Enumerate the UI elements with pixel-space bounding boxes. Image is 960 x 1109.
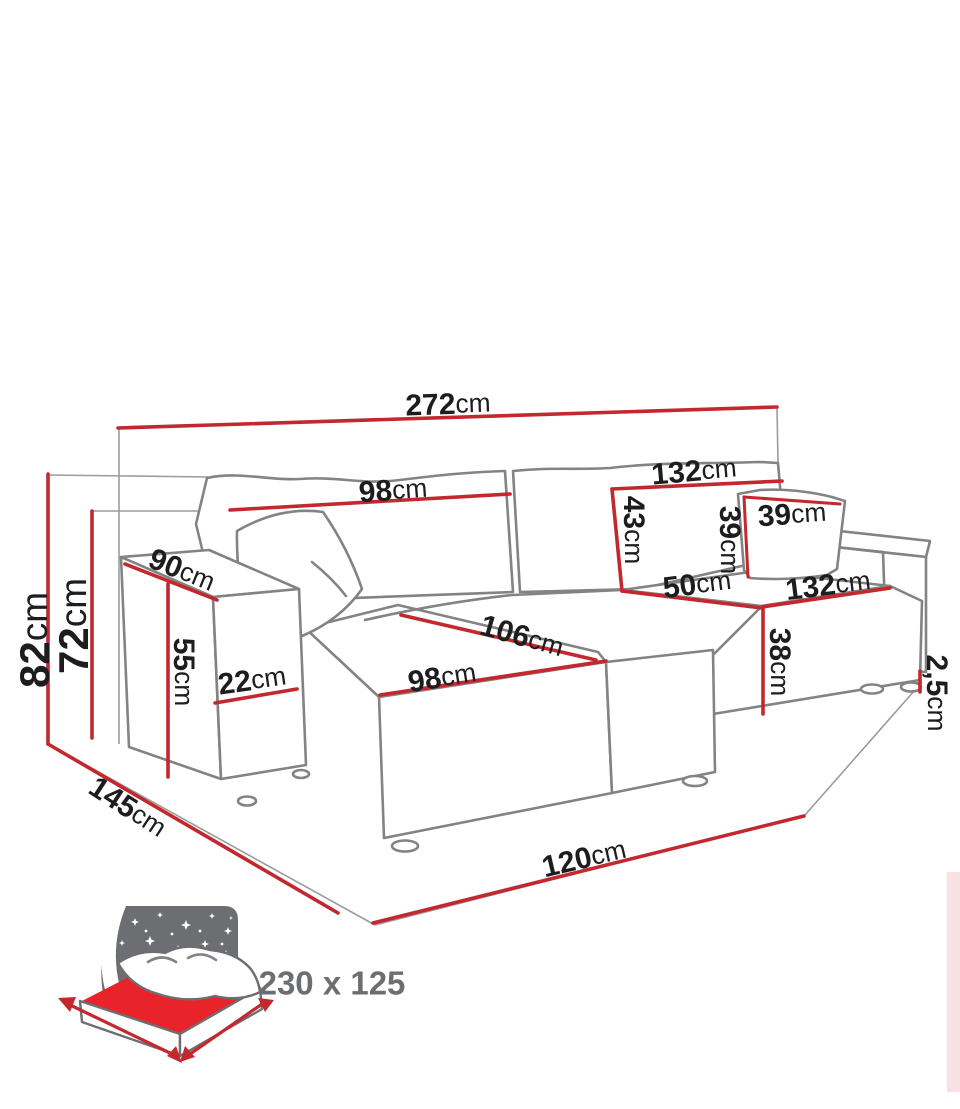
- dim-label-base-clearance: 2,5cm: [921, 655, 954, 732]
- sleeping-area-label: 230 x 125: [259, 965, 406, 1002]
- diagram-canvas: 230 x 125 272cm 132cm 98cm 43cm 39cm 39c…: [0, 0, 960, 1109]
- star-dot-icon: [221, 943, 224, 946]
- sofa-foot: [238, 797, 256, 806]
- star-dot-icon: [171, 933, 174, 936]
- sofa-foot: [861, 685, 883, 694]
- arrow-head-icon: [58, 997, 76, 1012]
- dim-label-cushion-height: 39cm: [714, 506, 747, 575]
- sleeping-area-icon: 230 x 125: [58, 906, 405, 1063]
- star-dot-icon: [145, 930, 148, 933]
- dim-label-back-height: 72cm: [50, 578, 97, 674]
- dim-label-armrest-height: 55cm: [168, 638, 201, 707]
- sofa-dimension-diagram: 230 x 125 272cm 132cm 98cm 43cm 39cm 39c…: [0, 0, 960, 1109]
- sofa-foot: [901, 683, 921, 692]
- extension-line-right: [777, 407, 778, 464]
- dim-label-seat-height: 38cm: [764, 628, 797, 697]
- star-dot-icon: [199, 930, 202, 933]
- sofa-foot: [392, 841, 418, 852]
- dim-label-backrest-height: 43cm: [618, 496, 651, 565]
- sofa-foot: [293, 770, 309, 778]
- sofa-foot: [683, 776, 707, 786]
- extension-line-82: [48, 475, 208, 477]
- dim-label-cushion-width: 39cm: [757, 495, 828, 533]
- dim-label-overall-width: 272cm: [405, 386, 491, 422]
- dim-label-front-width: 120cm: [539, 832, 629, 883]
- dim-label-back-left-width: 98cm: [358, 471, 429, 509]
- edge-strip: [947, 872, 960, 1092]
- chaise-right-face: [606, 650, 715, 793]
